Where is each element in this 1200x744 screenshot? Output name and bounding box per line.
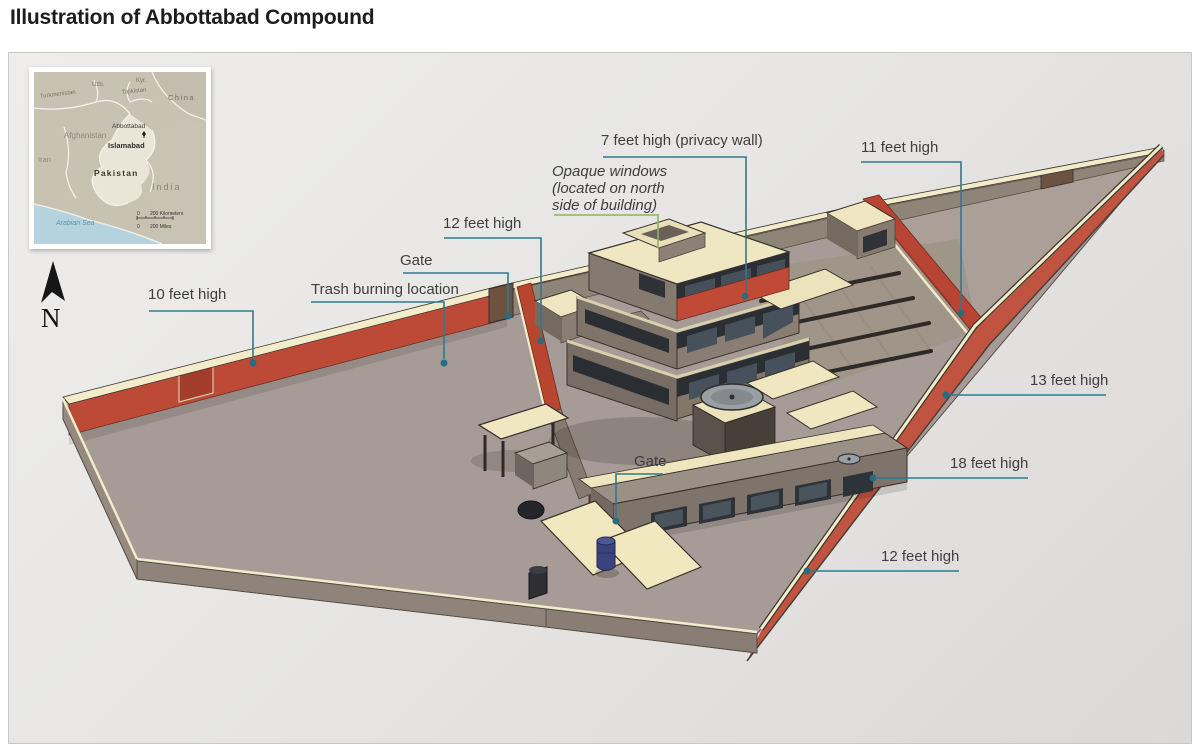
- map-label-pakistan: Pakistan: [94, 168, 139, 178]
- label-opaque-line3: side of building): [552, 198, 672, 215]
- map-label-afghanistan: Afghanistan: [64, 131, 106, 140]
- map-label-india: India: [152, 182, 182, 192]
- map-scale-mi-zero: 0: [137, 224, 140, 230]
- label-opaque-line2: (located on north: [552, 181, 672, 198]
- page-title: Illustration of Abbottabad Compound: [10, 6, 374, 30]
- map-label-china: China: [168, 93, 195, 102]
- map-label-iran: Iran: [38, 155, 51, 164]
- inset-map: Turkmenistan Uzb. Kyr. Tajikistan China …: [29, 67, 211, 249]
- screenshot-root: Illustration of Abbottabad Compound: [0, 0, 1200, 744]
- illustration-panel: Turkmenistan Uzb. Kyr. Tajikistan China …: [8, 52, 1192, 744]
- map-label-uzb: Uzb.: [92, 82, 105, 88]
- map-scale-mi: 200 Miles: [150, 224, 172, 230]
- map-scale-km-zero: 0: [137, 211, 140, 217]
- burn-pot: [518, 501, 544, 519]
- map-label-abbottabad: Abbottabad: [112, 123, 146, 130]
- label-wall-12ft-south: 12 feet high: [881, 549, 959, 566]
- compass-north-label: N: [41, 303, 61, 334]
- inset-map-canvas: Turkmenistan Uzb. Kyr. Tajikistan China …: [34, 72, 206, 244]
- label-wall-13ft: 13 feet high: [1030, 373, 1108, 390]
- compass: N: [33, 259, 77, 337]
- label-wall-18ft: 18 feet high: [950, 456, 1028, 473]
- map-label-kyr: Kyr.: [136, 78, 147, 84]
- north-arrow-icon: [33, 259, 77, 307]
- label-opaque-windows: Opaque windows (located on north side of…: [552, 164, 672, 214]
- blue-barrel: [595, 537, 619, 578]
- leader-10ft: [149, 311, 253, 359]
- label-trash-burning: Trash burning location: [311, 282, 459, 299]
- label-gate-north: Gate: [400, 253, 433, 270]
- label-privacy-wall: 7 feet high (privacy wall): [601, 133, 763, 150]
- trash-bin: [529, 566, 547, 599]
- label-wall-10ft: 10 feet high: [148, 287, 226, 304]
- map-label-islamabad: Islamabad: [108, 141, 145, 150]
- label-wall-12ft: 12 feet high: [443, 216, 521, 233]
- label-wall-11ft: 11 feet high: [861, 140, 938, 157]
- label-gate-south: Gate: [634, 454, 667, 471]
- map-label-arabian-sea: Arabian Sea: [55, 220, 95, 227]
- label-opaque-line1: Opaque windows: [552, 164, 672, 181]
